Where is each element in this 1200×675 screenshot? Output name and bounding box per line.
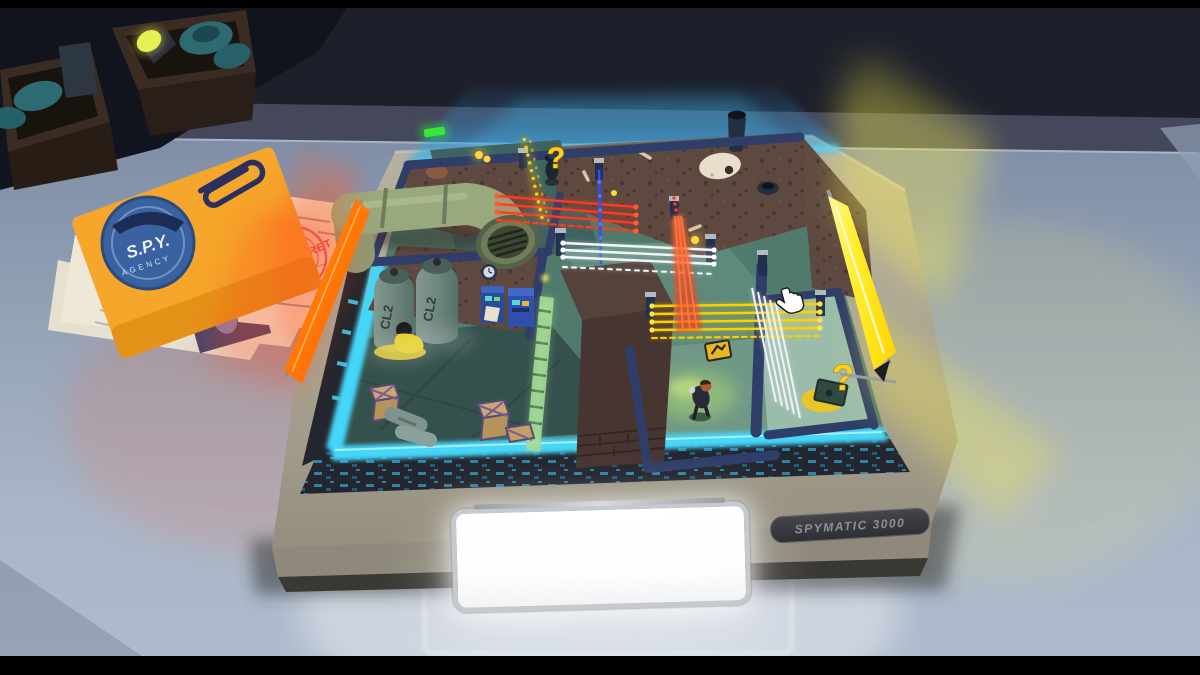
wall-lamp <box>542 275 549 282</box>
wall-clock <box>481 264 497 280</box>
exit-sign <box>420 124 449 140</box>
game-viewport: TOP SECRET S.P.Y. AGENCY <box>0 0 1200 675</box>
spy-agency-badge: S.P.Y. AGENCY <box>102 197 194 289</box>
device-name-text: SPYMATIC 3000 <box>794 515 905 536</box>
barrel <box>402 432 430 440</box>
supply-crate <box>478 400 509 440</box>
supply-crate <box>506 424 534 442</box>
letterbox-top <box>0 0 1200 8</box>
hazard-sign <box>705 340 732 361</box>
letterbox-bottom <box>0 656 1200 675</box>
question-marker-1: ? <box>547 142 565 175</box>
device-screen-panel[interactable] <box>451 501 752 613</box>
question-marker-2: ? <box>832 357 854 398</box>
